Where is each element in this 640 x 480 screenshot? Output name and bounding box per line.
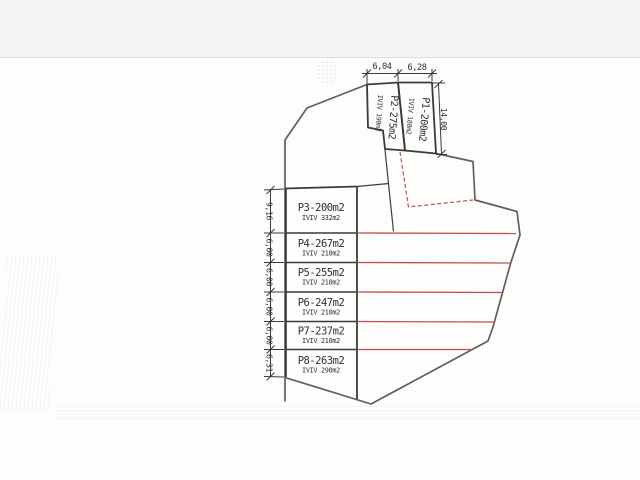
- left-dim-ext: [264, 377, 284, 378]
- plan-drawing: 6,04 6,28 14,00 P2-275m2 IVIV 190m2 P1-2…: [0, 0, 640, 480]
- dim-value-p4-height: 6,00: [265, 238, 275, 257]
- dim-value-top-2: 6,28: [407, 63, 426, 73]
- red-separator-lines: [357, 152, 516, 350]
- dim-value-p3-height: 9,16: [265, 202, 275, 221]
- red-dashed-line: [400, 152, 473, 207]
- dim-value-p8-height: 6,31: [265, 354, 275, 373]
- table-top-edge: [285, 187, 357, 189]
- red-line-1: [357, 233, 516, 234]
- table-row-labels: P3-200m2 IVIV 332m2 P4-267m2 IVIV 210m2 …: [298, 202, 345, 375]
- parcel-p2-sublabel: IVIV 190m2: [374, 95, 385, 132]
- dim-value-right: 14,00: [439, 108, 449, 131]
- dim-value-p7-height: 6,00: [265, 326, 275, 345]
- parcel-p3-sublabel: IVIV 332m2: [302, 214, 340, 222]
- dim-value-p5-height: 6,00: [265, 268, 275, 287]
- red-line-3: [357, 292, 502, 293]
- red-line-4: [357, 322, 494, 323]
- red-line-2: [357, 263, 510, 264]
- parcel-p6-label: P6-247m2: [298, 297, 345, 309]
- parcel-p4-sublabel: IVIV 210m2: [302, 250, 340, 258]
- parcel-p3-label: P3-200m2: [298, 202, 345, 214]
- parcel-p4-label: P4-267m2: [298, 238, 345, 250]
- parcel-p2-label: P2-275m2: [385, 95, 399, 140]
- dim-value-top-1: 6,04: [372, 62, 391, 72]
- auxiliary-lines: [357, 150, 394, 232]
- dim-value-p6-height: 6,00: [265, 297, 275, 316]
- parcel-p7-sublabel: IVIV 210m2: [302, 337, 340, 345]
- parcel-p1-sublabel: IVIV 180m2: [404, 98, 415, 136]
- parcel-p5-label: P5-255m2: [298, 267, 345, 279]
- parcel-p6-sublabel: IVIV 210m2: [302, 309, 340, 317]
- parcel-p5-sublabel: IVIV 210m2: [302, 279, 340, 287]
- parcel-p8-sublabel: IVIV 290m2: [302, 367, 340, 375]
- left-dim-ext: [264, 189, 284, 190]
- slanted-inner-line: [385, 150, 394, 232]
- parcel-p1-label: P1-200m2: [416, 97, 431, 142]
- table-top-extension-line: [357, 184, 389, 187]
- parcel-p8-label: P8-263m2: [298, 355, 345, 367]
- parcel-p7-label: P7-237m2: [298, 326, 345, 338]
- cad-site-plan: 6,04 6,28 14,00 P2-275m2 IVIV 190m2 P1-2…: [0, 0, 640, 480]
- parcel-p1-outline: [398, 83, 436, 154]
